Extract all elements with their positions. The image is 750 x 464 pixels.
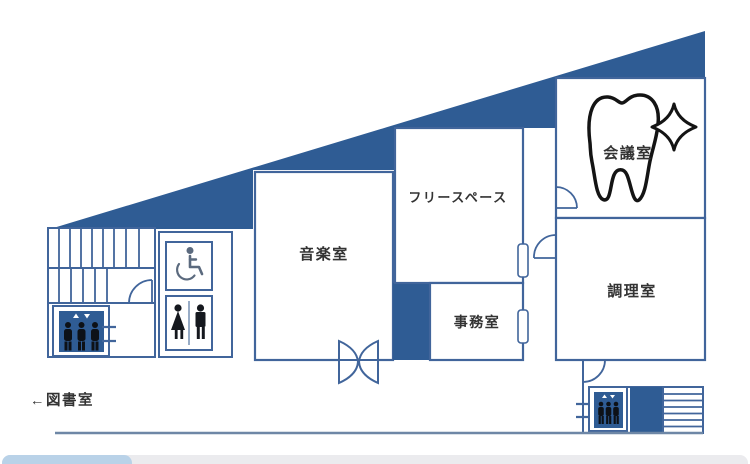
room-office: 事務室 bbox=[430, 283, 523, 360]
stairs-right bbox=[663, 387, 703, 433]
floor-plan-canvas: 音楽室 フリースペース 事務室 会議室 調理室 bbox=[0, 0, 750, 464]
stairs-left-treads-lower bbox=[59, 268, 107, 303]
library-direction-label: ←図書室 bbox=[30, 391, 94, 409]
elevator-left bbox=[53, 306, 116, 356]
room-cooking: 調理室 bbox=[556, 218, 705, 382]
door-swing-icon-cooking bbox=[583, 360, 605, 382]
service-block bbox=[393, 283, 430, 360]
toilet-room bbox=[159, 232, 232, 357]
room-office-label: 事務室 bbox=[454, 314, 501, 330]
entrance-navy-block bbox=[630, 387, 663, 433]
door-opening-office bbox=[518, 310, 528, 343]
room-music: 音楽室 bbox=[255, 172, 393, 360]
entrance-block-right bbox=[576, 360, 703, 433]
room-cooking-label: 調理室 bbox=[607, 282, 657, 300]
floor-plan-page: 音楽室 フリースペース 事務室 会議室 調理室 bbox=[0, 0, 750, 464]
door-swing-icon-corridor bbox=[534, 235, 556, 258]
room-free-space-outline bbox=[395, 128, 523, 283]
room-music-label: 音楽室 bbox=[299, 245, 349, 263]
stairs-left-treads-upper bbox=[59, 228, 139, 268]
room-free-space: フリースペース bbox=[395, 128, 523, 283]
room-meeting-label: 会議室 bbox=[603, 144, 653, 162]
room-meeting: 会議室 bbox=[556, 78, 705, 218]
door-opening-free-space bbox=[518, 244, 528, 277]
scrollbar-thumb[interactable] bbox=[2, 455, 132, 464]
room-music-outline bbox=[255, 172, 393, 360]
door-swing-icon-stairs bbox=[129, 280, 152, 303]
room-free-space-label: フリースペース bbox=[408, 190, 507, 205]
